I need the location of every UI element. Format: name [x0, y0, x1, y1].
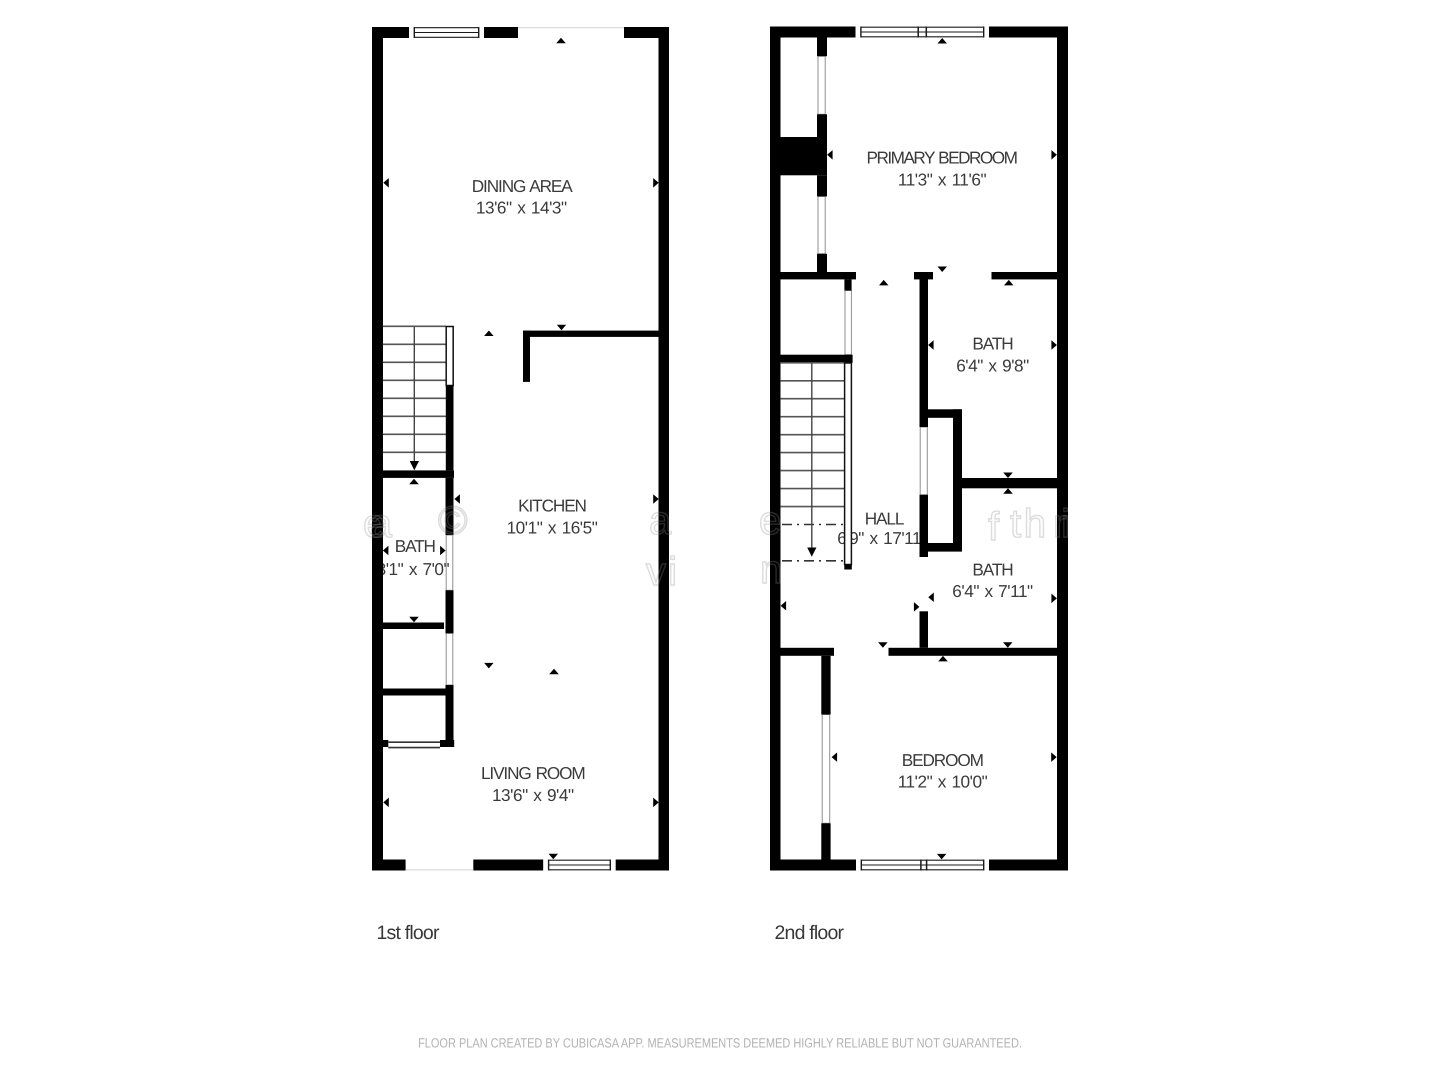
svg-text:3'1" x 7'0": 3'1" x 7'0"	[377, 559, 450, 579]
svg-text:ea: ea	[363, 502, 393, 546]
svg-text:DINING AREA: DINING AREA	[472, 176, 574, 196]
svg-text:th: th	[1010, 502, 1046, 546]
svg-text:2nd floor: 2nd floor	[775, 922, 845, 944]
svg-text:n: n	[760, 548, 782, 592]
svg-text:LIVING ROOM: LIVING ROOM	[481, 763, 585, 783]
svg-text:©: ©	[438, 499, 467, 543]
svg-text:1st floor: 1st floor	[377, 922, 440, 944]
svg-text:KITCHEN: KITCHEN	[518, 496, 586, 516]
svg-text:e: e	[759, 499, 781, 543]
svg-text:FLOOR PLAN CREATED BY CUBICASA: FLOOR PLAN CREATED BY CUBICASA APP. MEAS…	[418, 1035, 1022, 1050]
svg-text:HALL: HALL	[865, 509, 904, 529]
svg-text:PRIMARY BEDROOM: PRIMARY BEDROOM	[867, 147, 1017, 167]
svg-text:f: f	[988, 505, 1000, 549]
svg-text:ri: ri	[1053, 502, 1070, 546]
svg-text:BEDROOM: BEDROOM	[902, 750, 983, 770]
svg-text:a: a	[649, 499, 672, 543]
svg-text:10'1" x 16'5": 10'1" x 16'5"	[507, 518, 598, 538]
svg-text:vi: vi	[646, 550, 677, 594]
svg-text:BATH: BATH	[395, 536, 436, 556]
svg-text:BATH: BATH	[972, 334, 1013, 354]
svg-text:13'6" x 14'3": 13'6" x 14'3"	[476, 198, 567, 218]
svg-text:BATH: BATH	[972, 560, 1013, 580]
svg-text:6'4" x 7'11": 6'4" x 7'11"	[952, 581, 1033, 601]
svg-text:11'3" x 11'6": 11'3" x 11'6"	[898, 170, 987, 190]
svg-text:13'6" x 9'4": 13'6" x 9'4"	[492, 785, 574, 805]
svg-text:6'4" x 9'8": 6'4" x 9'8"	[956, 356, 1029, 376]
svg-text:11'2" x 10'0": 11'2" x 10'0"	[898, 772, 988, 792]
